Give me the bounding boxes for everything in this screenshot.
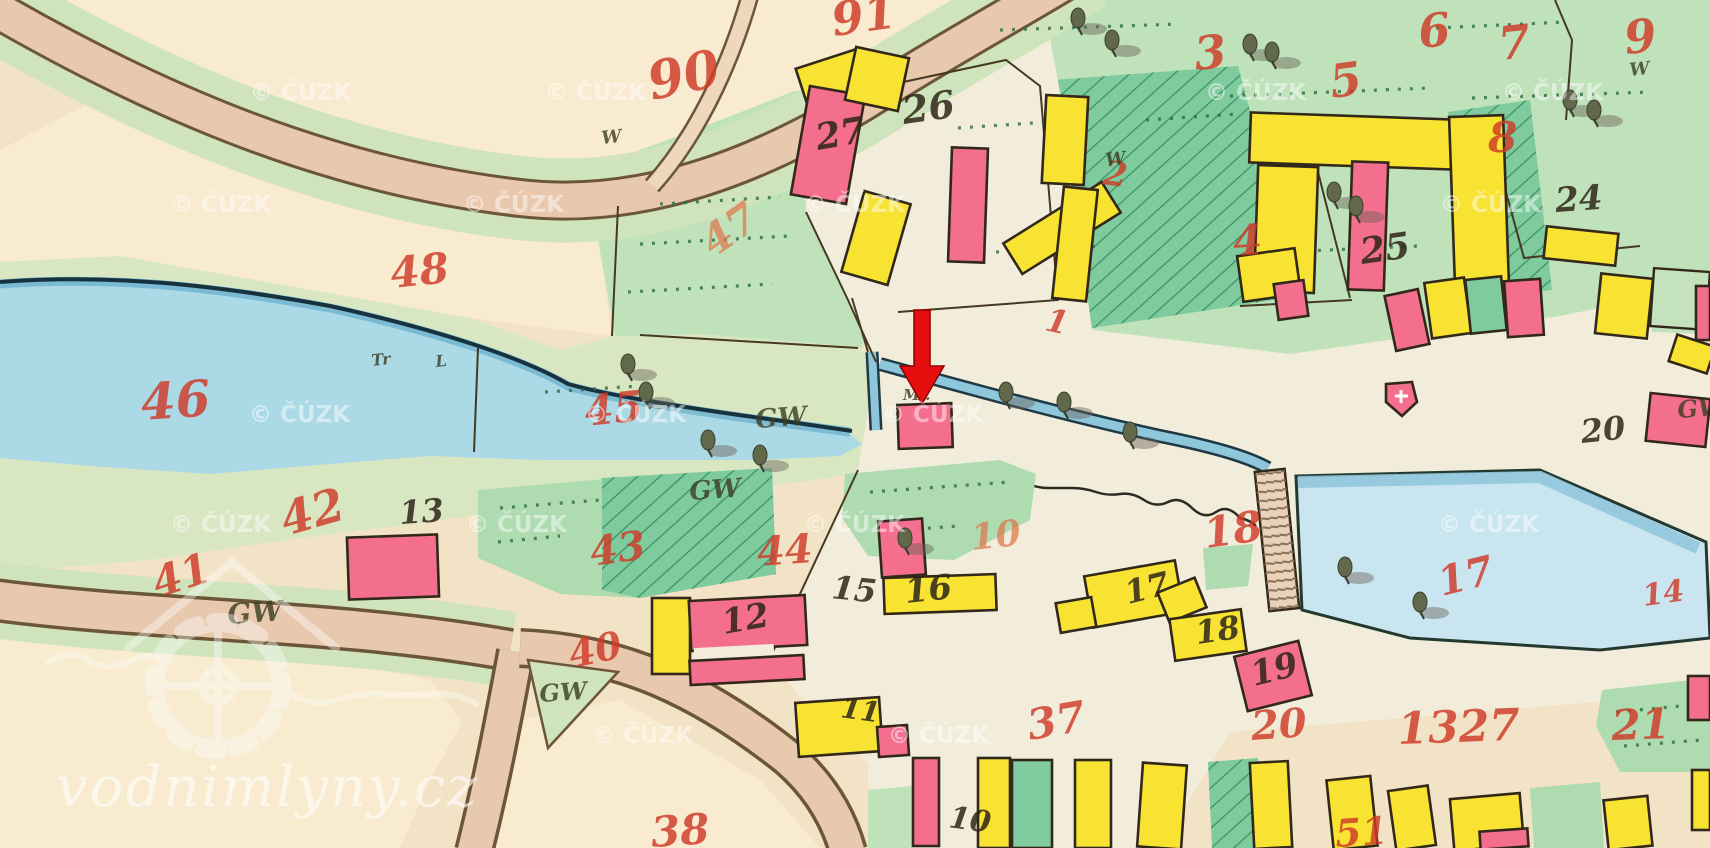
landuse-label: GW [1676,392,1710,424]
red-parcel-number: 8 [1487,113,1517,162]
cuzk-watermark: © ČÚZK [804,190,906,218]
cuzk-watermark: © ČÚZK [804,510,906,538]
cuzk-watermark: © ČÚZK [1440,190,1542,218]
red-parcel-number: 37 [1023,691,1089,749]
house-number: 25 [1356,224,1412,273]
red-parcel-number: 18 [1201,501,1266,558]
cuzk-watermark: © ČÚZK [592,721,694,749]
red-parcel-number: 46 [139,368,213,432]
house-number: 18 [1193,608,1242,652]
building [845,47,909,111]
cuzk-watermark: © ČÚZK [1502,78,1604,106]
cuzk-watermark: © ČÚZK [466,510,568,538]
landuse-label: L [433,351,447,371]
building [1696,286,1710,340]
building [1504,279,1544,337]
house-number: 11 [839,691,882,729]
building [1042,95,1089,185]
cuzk-watermark: © ČÚZK [170,190,272,218]
red-parcel-number: 6 [1416,2,1453,59]
cuzk-watermark: © ČÚZK [545,78,647,106]
building [347,534,439,599]
building [1479,828,1528,848]
building [1056,597,1097,633]
red-parcel-number: 10 [969,512,1023,559]
red-parcel-number: 7 [1496,14,1533,71]
red-parcel-number: 4 [1231,215,1264,266]
house-number: 27 [811,109,869,159]
house-number: 16 [903,567,954,612]
site-watermark-text: vodnimlyny.cz [56,755,479,820]
house-number: 24 [1553,178,1604,221]
building [1465,276,1506,333]
red-parcel-number: 3 [1192,24,1229,81]
cuzk-watermark: © ČÚZK [463,190,565,218]
building [1604,796,1653,848]
building [1012,760,1052,848]
cuzk-watermark: © ČÚZK [249,400,351,428]
building [948,147,988,262]
red-parcel-number: 48 [388,243,451,298]
cuzk-watermark: © ČÚZK [585,400,687,428]
red-parcel-number: 21 [1610,699,1671,750]
red-parcel-number: 20 [1248,699,1308,750]
building [1274,280,1309,320]
building [1388,786,1436,848]
house-number: 13 [398,491,445,532]
cadastral-map-canvas: 9091474846454241434440356798421101817142… [0,0,1710,848]
red-parcel-number: 38 [649,804,711,848]
building [689,655,804,685]
red-parcel-number: 43 [587,522,649,576]
cuzk-watermark: © ČÚZK [1438,510,1540,538]
house-number: 20 [1578,409,1627,452]
house-number: 15 [830,568,878,610]
cuzk-watermark: © ČÚZK [250,78,352,106]
house-number: 26 [898,81,958,133]
red-parcel-number: 14 [1640,573,1686,613]
landuse-label: GW [754,401,810,435]
map-viewport[interactable]: 9091474846454241434440356798421101817142… [0,0,1710,848]
building [1250,761,1292,848]
red-parcel-number: 51 [1333,807,1389,848]
building [1544,226,1619,265]
cuzk-watermark: © ČÚZK [1205,78,1307,106]
cuzk-watermark: © ČÚZK [888,721,990,749]
house-number: 12 [719,595,773,643]
landuse-label: Tr [370,349,393,370]
building [1424,277,1471,338]
landuse-label: GW [538,676,589,708]
building [1137,763,1187,848]
building [1688,676,1710,720]
red-parcel-number: 9 [1622,8,1659,65]
building [1692,770,1710,830]
red-parcel-number: 1327 [1397,700,1522,755]
building [652,598,690,674]
building [913,758,939,846]
building [1595,273,1653,338]
cuzk-watermark: © ČÚZK [882,400,984,428]
building [1075,760,1111,848]
house-number: 10 [947,800,993,840]
cuzk-watermark: © ČÚZK [170,510,272,538]
landuse-label: GW [688,473,744,507]
